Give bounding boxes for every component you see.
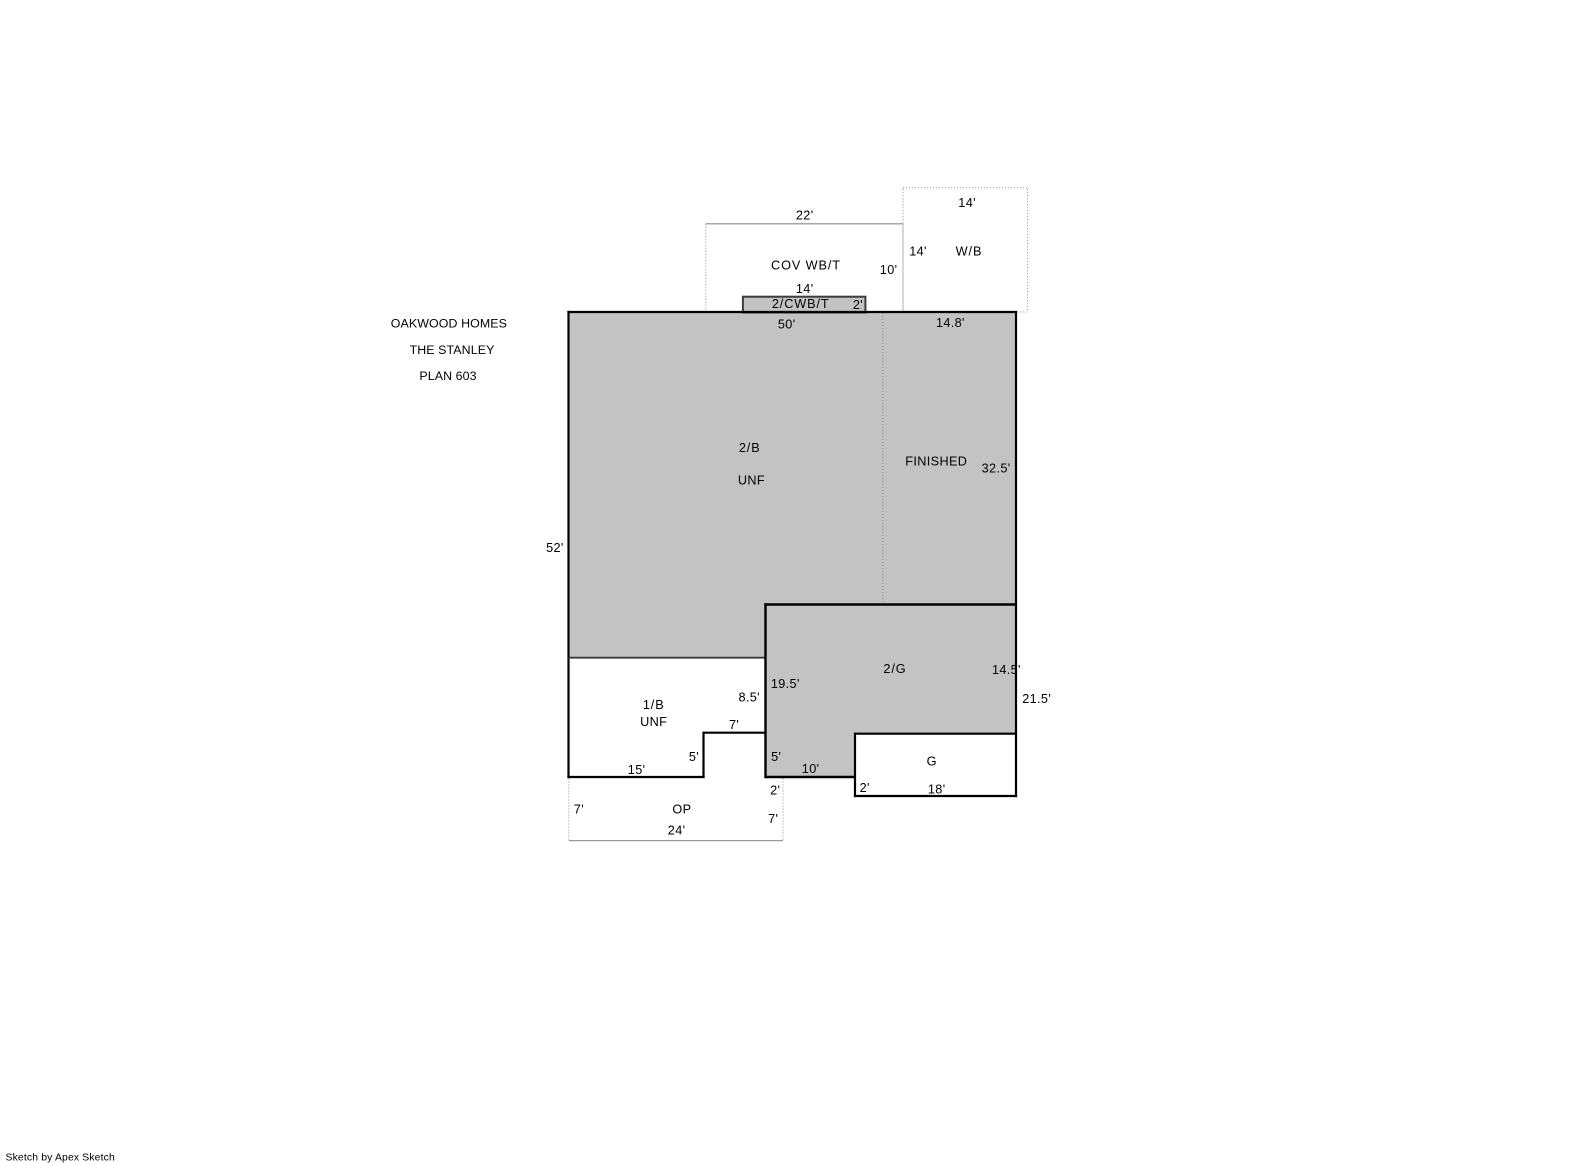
svg-text:24': 24'	[668, 823, 686, 837]
svg-text:2': 2'	[853, 298, 863, 312]
svg-text:2/CWB/T: 2/CWB/T	[772, 297, 830, 311]
svg-text:7': 7'	[729, 718, 739, 732]
svg-text:FINISHED: FINISHED	[905, 455, 967, 469]
svg-text:2/B: 2/B	[739, 441, 761, 455]
svg-text:8.5': 8.5'	[738, 690, 759, 704]
svg-text:OP: OP	[672, 803, 691, 817]
svg-text:14.8': 14.8'	[936, 316, 965, 330]
svg-text:COV WB/T: COV WB/T	[771, 259, 841, 273]
svg-text:THE STANLEY: THE STANLEY	[410, 343, 495, 357]
svg-text:10': 10'	[880, 263, 898, 277]
svg-text:UNF: UNF	[640, 715, 667, 729]
svg-text:32.5': 32.5'	[982, 461, 1011, 475]
svg-text:18': 18'	[928, 782, 946, 796]
svg-text:UNF: UNF	[738, 474, 765, 488]
svg-text:14': 14'	[909, 245, 927, 259]
svg-text:14.5': 14.5'	[992, 663, 1021, 677]
svg-text:2': 2'	[770, 783, 780, 797]
svg-text:2/G: 2/G	[883, 662, 906, 676]
svg-text:15': 15'	[628, 763, 646, 777]
svg-text:22': 22'	[796, 209, 814, 223]
svg-text:G: G	[927, 755, 937, 769]
svg-text:10': 10'	[802, 762, 820, 776]
svg-text:1/B: 1/B	[643, 698, 665, 712]
svg-text:50': 50'	[778, 317, 796, 331]
svg-text:52': 52'	[546, 541, 564, 555]
svg-text:PLAN 603: PLAN 603	[419, 369, 476, 383]
svg-text:14': 14'	[958, 196, 976, 210]
svg-text:2': 2'	[860, 781, 870, 795]
svg-text:21.5': 21.5'	[1022, 692, 1051, 706]
svg-text:5': 5'	[689, 750, 699, 764]
svg-text:Sketch by Apex Sketch: Sketch by Apex Sketch	[6, 1153, 115, 1163]
svg-text:5': 5'	[771, 750, 781, 764]
svg-text:19.5': 19.5'	[771, 677, 800, 691]
svg-text:7': 7'	[574, 803, 584, 817]
svg-text:14': 14'	[796, 282, 814, 296]
svg-text:OAKWOOD HOMES: OAKWOOD HOMES	[391, 317, 507, 331]
svg-text:7': 7'	[768, 812, 778, 826]
svg-text:W/B: W/B	[956, 245, 983, 259]
